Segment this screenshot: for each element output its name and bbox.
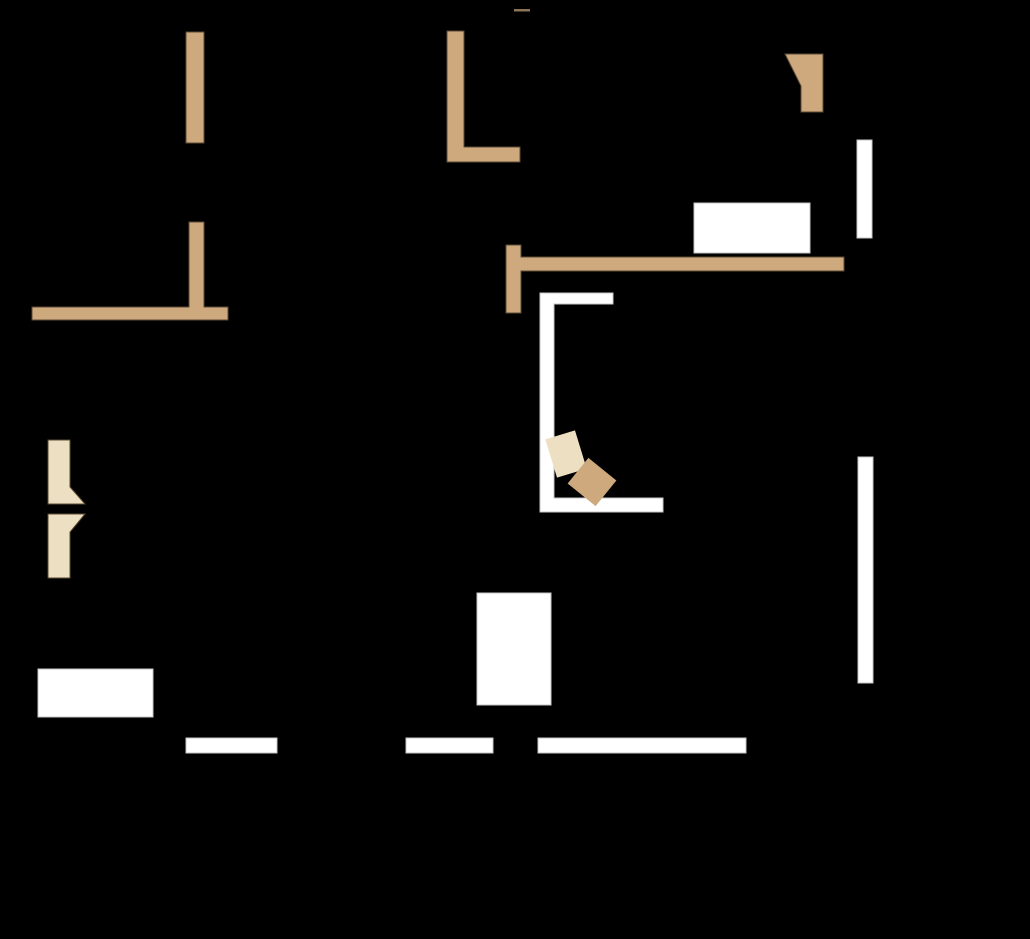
brown-thin-line-top-center	[514, 9, 530, 12]
floor-plan-canvas	[0, 0, 1030, 939]
white-wall-bar-right-middle	[858, 457, 873, 683]
map-viewport	[0, 0, 1030, 939]
cream-notched-bar-lower-left	[48, 514, 85, 578]
white-wall-bar-bottom-right	[538, 738, 746, 753]
white-block-top-right	[694, 203, 810, 253]
white-block-bottom-center	[477, 593, 551, 705]
white-block-bottom-left	[38, 669, 153, 717]
cream-notched-bar-upper-left	[48, 440, 85, 504]
white-wall-bar-bottom-left	[186, 738, 277, 753]
tan-tee-wall-left	[32, 222, 228, 320]
tan-wall-corner-top-center	[447, 31, 520, 162]
white-wall-bar-top-right	[857, 140, 872, 238]
white-wall-bar-bottom-middle	[406, 738, 493, 753]
tan-wall-bar-top-left	[186, 32, 204, 143]
tan-flag-top-right	[785, 54, 823, 112]
